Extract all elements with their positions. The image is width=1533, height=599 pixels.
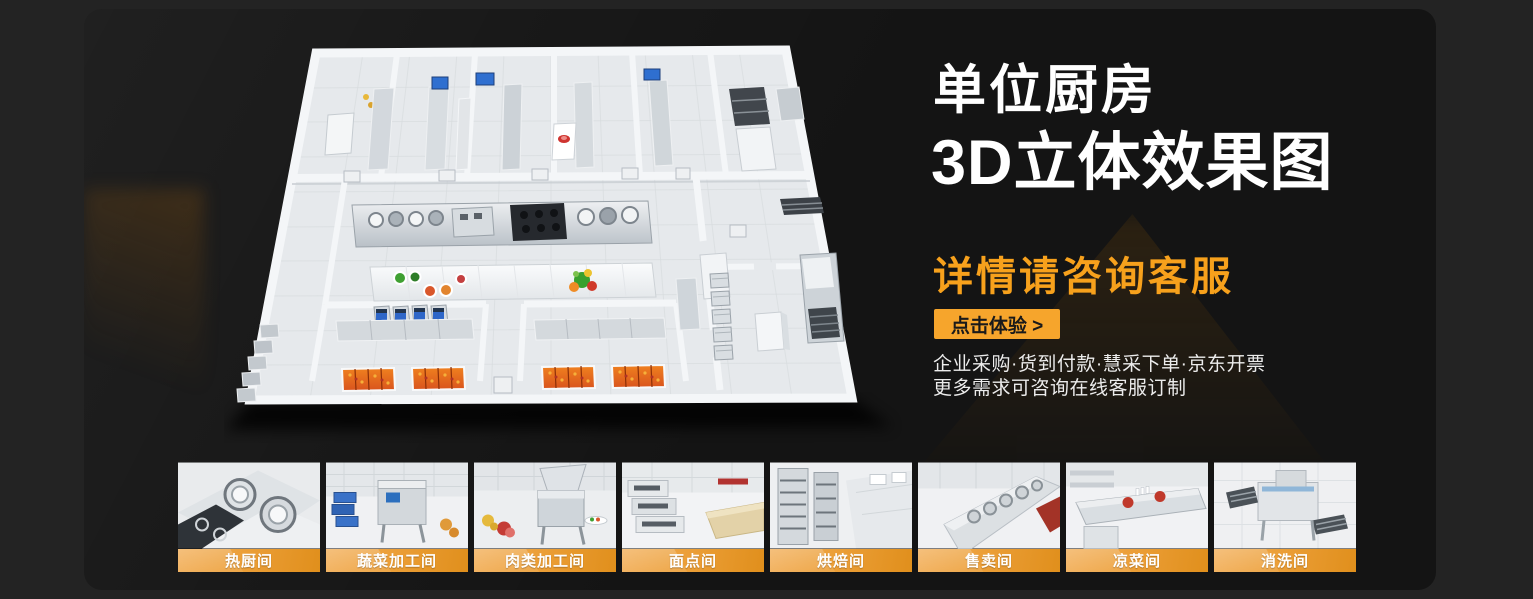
gallery-item-washing[interactable]: 消洗间 [1214, 462, 1356, 572]
gallery-item-meat-processing[interactable]: 肉类加工间 [474, 462, 616, 572]
gallery-label: 面点间 [622, 549, 764, 572]
floorplan-prep-table [370, 263, 656, 301]
gallery-label: 肉类加工间 [474, 549, 616, 572]
hero-info-line2: 更多需求可咨询在线客服订制 [933, 377, 1265, 401]
cta-button[interactable]: 点击体验 > [934, 309, 1060, 339]
hero-title-line1: 单位厨房 [933, 61, 1157, 122]
hero-info-line1: 企业采购·货到付款·慧采下单·京东开票 [933, 353, 1265, 377]
left-orange-glow [84, 189, 204, 489]
gallery-label: 凉菜间 [1066, 549, 1208, 572]
hero-title-line2: 3D立体效果图 [931, 127, 1334, 199]
thumbnail-image-cold-dish [1066, 462, 1208, 549]
floorplan-cook-line [352, 201, 652, 247]
thumbnail-image-hot-kitchen [178, 462, 320, 549]
hero-info: 企业采购·货到付款·慧采下单·京东开票 更多需求可咨询在线客服订制 [933, 353, 1265, 401]
hero-subtitle: 详情请咨询客服 [933, 244, 1234, 302]
thumbnail-image-washing [1214, 462, 1356, 549]
gallery-label: 售卖间 [918, 549, 1060, 572]
room-gallery: 热厨间 蔬菜加工间 [178, 462, 1356, 572]
gallery-label: 消洗间 [1214, 549, 1356, 572]
thumbnail-image-meat-processing [474, 462, 616, 549]
promo-banner: 单位厨房 3D立体效果图 详情请咨询客服 点击体验 > 企业采购·货到付款·慧采… [84, 9, 1436, 590]
thumbnail-image-baking [770, 462, 912, 549]
thumbnail-image-pastry [622, 462, 764, 549]
thumbnail-image-vegetable-processing [326, 462, 468, 549]
gallery-label: 热厨间 [178, 549, 320, 572]
gallery-label: 烘焙间 [770, 549, 912, 572]
gallery-item-cold-dish[interactable]: 凉菜间 [1066, 462, 1208, 572]
gallery-item-hot-kitchen[interactable]: 热厨间 [178, 462, 320, 572]
kitchen-floorplan-3d [224, 29, 924, 449]
gallery-item-vegetable-processing[interactable]: 蔬菜加工间 [326, 462, 468, 572]
gallery-item-pastry[interactable]: 面点间 [622, 462, 764, 572]
page-background: { "banner": { "title_line1": "单位厨房", "ti… [0, 0, 1533, 599]
gallery-item-baking[interactable]: 烘焙间 [770, 462, 912, 572]
gallery-item-sales[interactable]: 售卖间 [918, 462, 1060, 572]
gallery-label: 蔬菜加工间 [326, 549, 468, 572]
thumbnail-image-sales [918, 462, 1060, 549]
